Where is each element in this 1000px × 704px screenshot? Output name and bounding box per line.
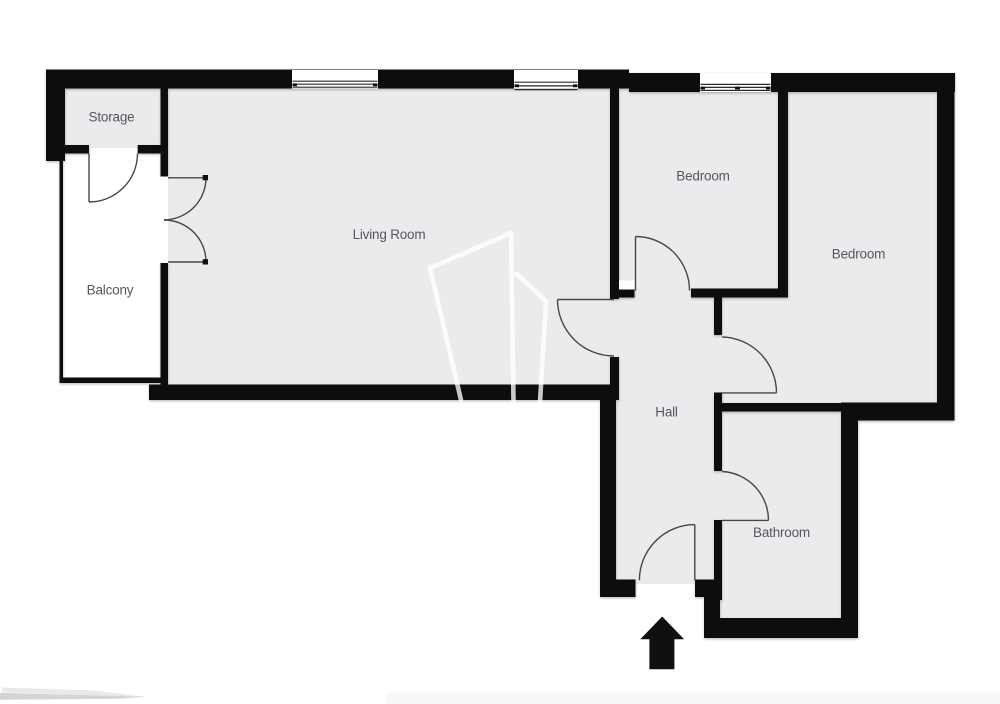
svg-text:Bathroom: Bathroom (753, 525, 810, 540)
svg-text:Balcony: Balcony (87, 283, 134, 298)
svg-text:Storage: Storage (89, 110, 135, 125)
svg-text:Bedroom: Bedroom (676, 169, 729, 184)
svg-text:Bedroom: Bedroom (832, 247, 885, 262)
svg-text:Living Room: Living Room (353, 227, 426, 242)
svg-text:Hall: Hall (655, 405, 678, 420)
